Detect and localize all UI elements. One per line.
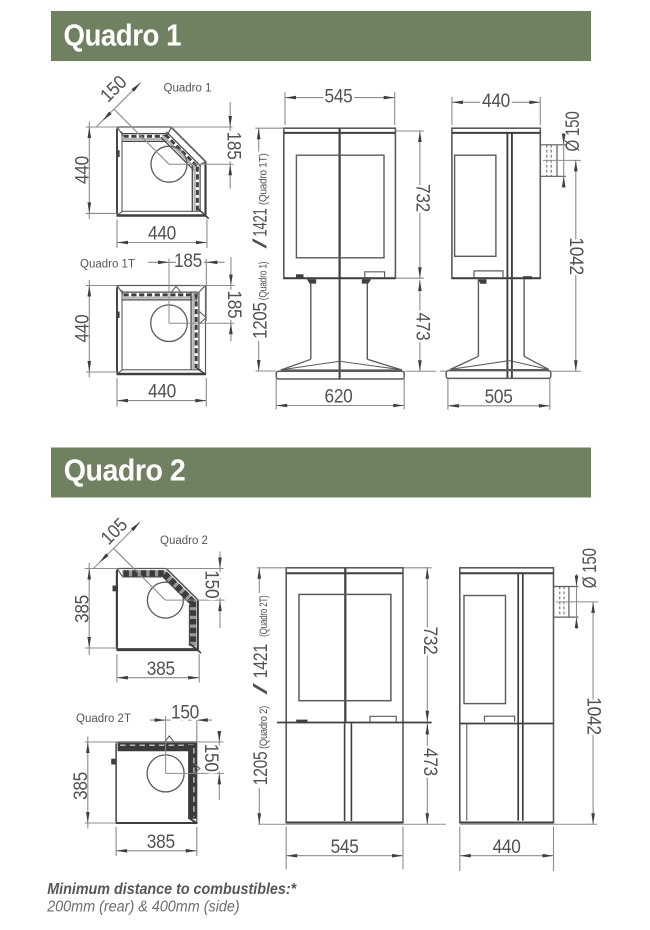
svg-text:Quadro 2: Quadro 2 [64, 453, 186, 487]
svg-text:1042: 1042 [582, 697, 603, 735]
svg-text:185: 185 [223, 290, 244, 318]
svg-text:440: 440 [73, 315, 94, 343]
svg-text:440: 440 [148, 382, 176, 403]
svg-text:732: 732 [419, 627, 440, 655]
svg-text:545: 545 [331, 837, 359, 858]
svg-text:(Quadro 2T): (Quadro 2T) [258, 596, 270, 637]
svg-text:385: 385 [72, 595, 93, 623]
svg-text:185: 185 [222, 132, 243, 160]
svg-text:545: 545 [325, 86, 353, 107]
svg-text:440: 440 [482, 91, 510, 112]
svg-text:1421: 1421 [251, 644, 272, 678]
svg-text:185: 185 [174, 251, 202, 272]
svg-text:Quadro 2T: Quadro 2T [76, 713, 131, 725]
svg-text:Quadro 1: Quadro 1 [164, 83, 212, 95]
svg-text:473: 473 [419, 748, 440, 776]
svg-text:385: 385 [71, 772, 92, 800]
svg-text:1421: 1421 [250, 208, 271, 236]
svg-text:200mm (rear) & 400mm (side): 200mm (rear) & 400mm (side) [46, 899, 239, 916]
svg-text:(Quadro 2): (Quadro 2) [258, 706, 270, 749]
svg-text:1042: 1042 [565, 237, 586, 275]
svg-text:Quadro 2: Quadro 2 [160, 535, 208, 547]
svg-text:Ø 150: Ø 150 [563, 112, 584, 152]
svg-text:1205: 1205 [250, 302, 271, 339]
svg-text:473: 473 [412, 313, 433, 341]
svg-text:Quadro 1T: Quadro 1T [80, 259, 135, 271]
svg-text:385: 385 [147, 659, 175, 680]
svg-text:(Quadro 1T): (Quadro 1T) [257, 153, 269, 205]
svg-text:150: 150 [201, 570, 222, 598]
svg-text:Ø 150: Ø 150 [580, 548, 601, 588]
svg-text:(Quadro 1): (Quadro 1) [257, 262, 269, 301]
svg-text:505: 505 [485, 387, 513, 408]
svg-text:150: 150 [200, 744, 221, 772]
svg-text:Quadro 1: Quadro 1 [64, 19, 182, 53]
svg-text:Minimum distance to combustibl: Minimum distance to combustibles:* [47, 881, 297, 898]
svg-text:150: 150 [171, 702, 199, 723]
svg-text:620: 620 [325, 387, 353, 408]
svg-text:385: 385 [147, 832, 175, 853]
svg-text:440: 440 [148, 224, 176, 245]
svg-text:440: 440 [493, 837, 521, 858]
svg-text:1205: 1205 [251, 752, 272, 786]
svg-text:732: 732 [412, 184, 433, 212]
svg-text:440: 440 [73, 156, 94, 184]
